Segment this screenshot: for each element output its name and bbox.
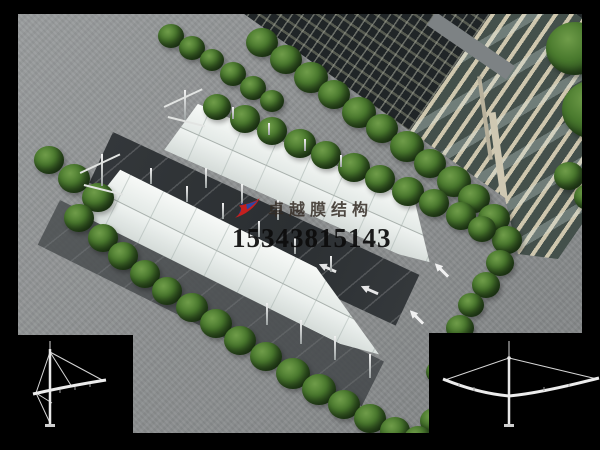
canopy-mast: [186, 186, 188, 202]
canopy-mast: [369, 354, 371, 378]
tree: [64, 204, 94, 232]
road-direction-arrow: [407, 307, 426, 326]
canopy-mast: [330, 256, 332, 272]
tree: [311, 141, 341, 169]
canopy-mast: [266, 303, 268, 325]
canopy-mast: [222, 203, 224, 219]
tree: [365, 165, 395, 193]
canopy-mast: [334, 336, 336, 360]
canopy-mast: [340, 155, 342, 167]
road-direction-arrow: [432, 260, 451, 279]
canopy-mast: [205, 168, 207, 188]
company-name: 卓越膜结构: [268, 196, 373, 220]
canopy-mast: [232, 107, 234, 119]
double-cantilever-drawing: [429, 333, 600, 450]
company-logo-icon: [232, 194, 262, 222]
watermark: 卓越膜结构 15343815143: [232, 194, 452, 254]
tree: [203, 94, 231, 120]
tree: [458, 293, 484, 317]
canopy-mast: [101, 154, 103, 186]
phone-number: 15343815143: [232, 223, 452, 254]
single-cantilever-drawing: [0, 335, 133, 450]
tree: [257, 117, 287, 145]
canopy-mast: [150, 168, 152, 184]
tree: [554, 162, 582, 190]
canopy-mast: [268, 123, 270, 135]
canopy-mast: [304, 139, 306, 151]
tree: [468, 216, 496, 242]
rendering-page: { "watermark": { "logo": "red-blue-swoos…: [0, 0, 600, 450]
inset-panel-bottom-right: [429, 333, 600, 450]
tree: [230, 105, 260, 133]
canopy-mast: [300, 320, 302, 344]
tree: [34, 146, 64, 174]
tree: [260, 90, 284, 112]
inset-panel-bottom-left: [0, 335, 133, 450]
